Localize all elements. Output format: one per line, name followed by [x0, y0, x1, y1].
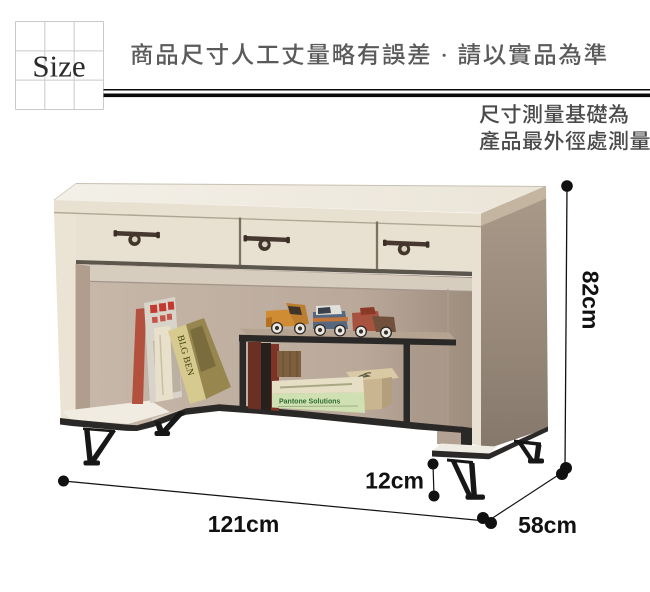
svg-text:58cm: 58cm	[518, 512, 577, 538]
svg-text:Size: Size	[32, 49, 85, 84]
svg-text:82cm: 82cm	[578, 271, 604, 330]
svg-text:Pantone Solutions: Pantone Solutions	[279, 399, 341, 406]
svg-text:121cm: 121cm	[208, 511, 280, 537]
svg-text:12cm: 12cm	[365, 468, 424, 494]
